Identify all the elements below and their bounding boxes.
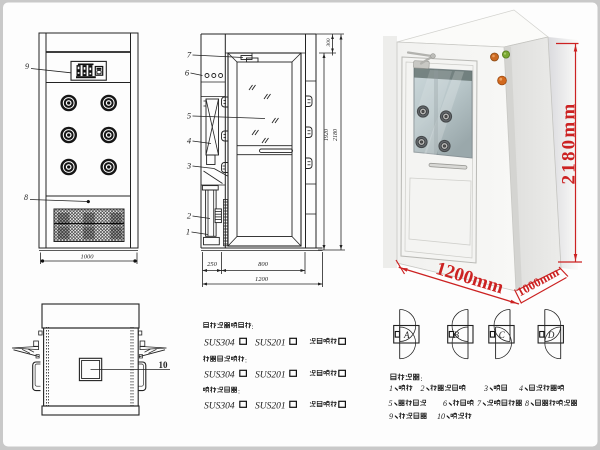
svg-text:2: 2 <box>421 384 425 393</box>
svg-text:300: 300 <box>326 38 332 48</box>
svg-text:6: 6 <box>443 399 447 408</box>
svg-text:9: 9 <box>389 412 393 421</box>
svg-text::: : <box>245 357 247 365</box>
svg-text:10: 10 <box>437 412 445 421</box>
svg-text:1: 1 <box>186 227 190 237</box>
svg-text::: : <box>420 374 422 383</box>
svg-text:9: 9 <box>25 62 29 71</box>
svg-text:250: 250 <box>207 261 218 268</box>
svg-text:1: 1 <box>389 384 393 393</box>
svg-text:SUS304: SUS304 <box>204 371 235 381</box>
svg-text:SUS201: SUS201 <box>255 402 286 412</box>
svg-text:2180mm: 2180mm <box>559 102 580 185</box>
svg-text:10: 10 <box>159 360 169 370</box>
svg-text:SUS201: SUS201 <box>255 371 286 381</box>
svg-text:1200: 1200 <box>255 276 269 283</box>
svg-text:SUS304: SUS304 <box>204 402 235 412</box>
svg-text:5: 5 <box>389 399 393 408</box>
svg-text:A: A <box>403 330 410 340</box>
svg-text:C: C <box>499 330 506 340</box>
svg-text:3: 3 <box>483 384 488 393</box>
svg-text::: : <box>238 388 240 396</box>
svg-text:1000: 1000 <box>81 254 95 261</box>
svg-text:D: D <box>547 330 555 340</box>
svg-text:8: 8 <box>24 193 28 202</box>
svg-text:1920: 1920 <box>324 129 330 141</box>
svg-text:B: B <box>453 330 459 340</box>
svg-text:8: 8 <box>525 399 529 408</box>
svg-text:800: 800 <box>258 261 269 268</box>
svg-text:5: 5 <box>187 111 191 121</box>
svg-text:SUS201: SUS201 <box>255 339 286 349</box>
svg-text:4: 4 <box>519 384 523 393</box>
svg-text::: : <box>252 323 254 331</box>
svg-text:SUS304: SUS304 <box>204 339 235 349</box>
svg-text:2180: 2180 <box>333 129 339 141</box>
svg-text:3: 3 <box>186 161 191 171</box>
